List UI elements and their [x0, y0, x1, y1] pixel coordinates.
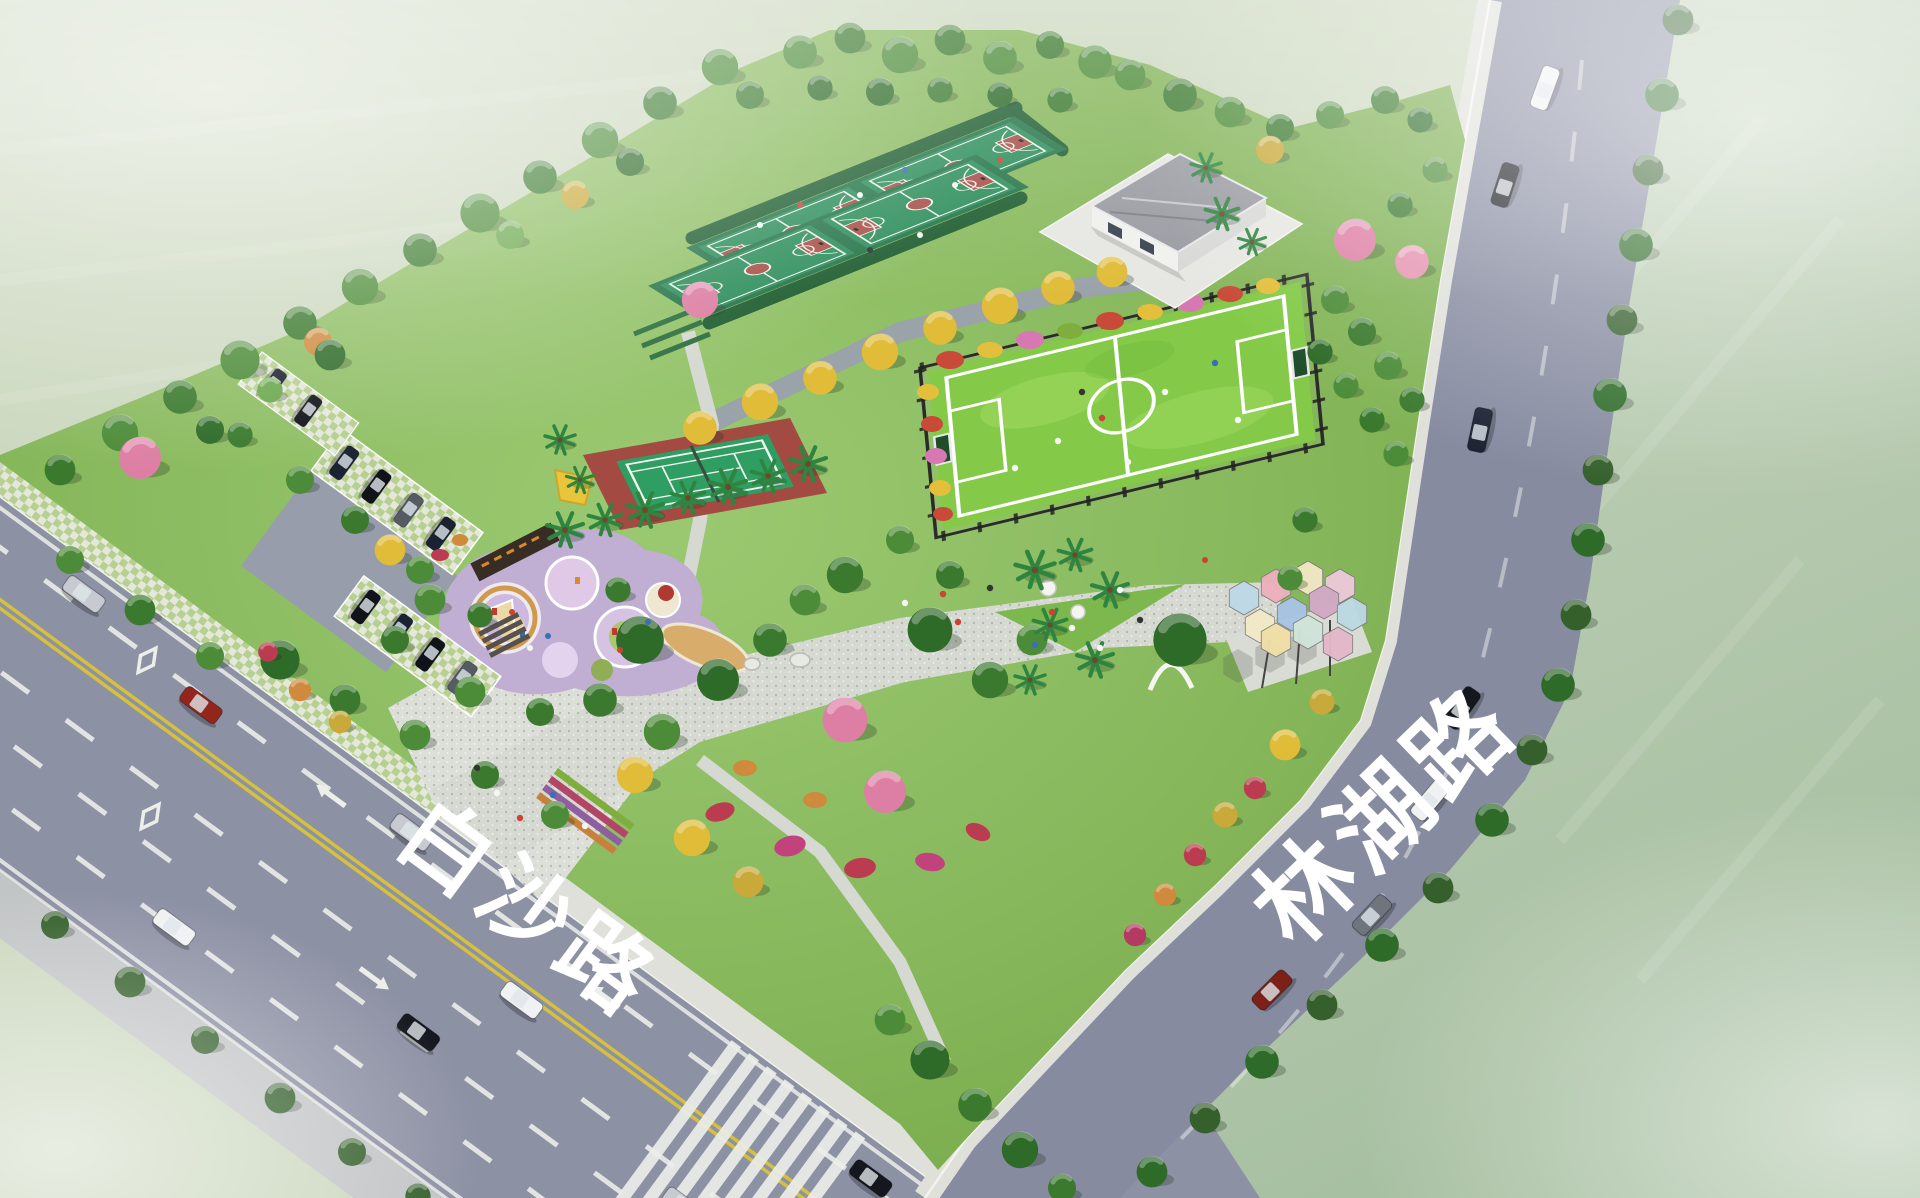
park-masterplan-svg: 白沙路 林湖路	[0, 0, 1920, 1198]
masterplan-rendering: 白沙路 林湖路	[0, 0, 1920, 1198]
